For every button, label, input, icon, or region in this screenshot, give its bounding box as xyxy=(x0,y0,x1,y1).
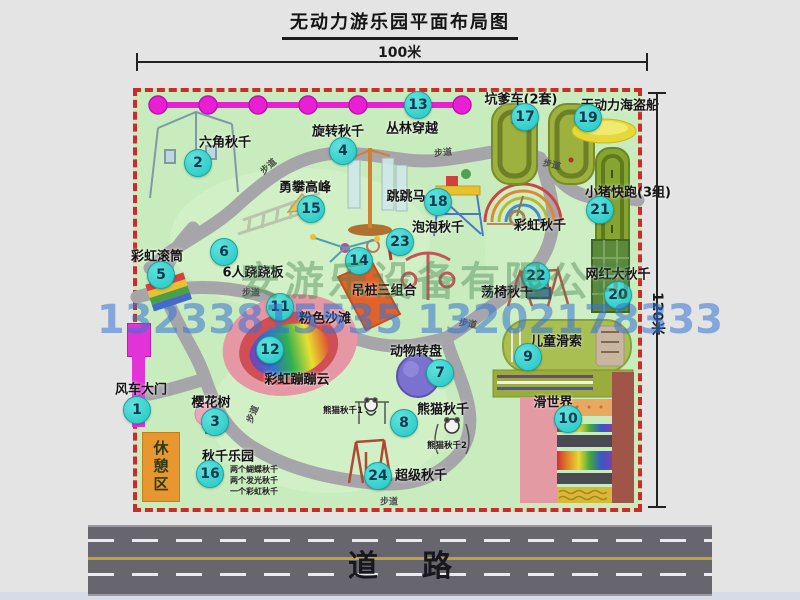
page-title: 无动力游乐园平面布局图 xyxy=(282,8,518,40)
footpath-label: 步道 xyxy=(380,495,398,508)
label-jumping-horse: 跳跳马 xyxy=(386,186,425,205)
label-jungle-crossing: 丛林穿越 xyxy=(386,118,438,137)
slide-world-icon xyxy=(493,370,634,503)
label-panda-swing: 熊猫秋千 xyxy=(417,399,469,418)
label-panda-swing-2: 熊猫秋千2 xyxy=(427,439,467,451)
right-dimension-tick-bottom xyxy=(648,506,666,508)
label-super-swing: 超级秋千 xyxy=(395,465,447,484)
badge-kids-zipline: 9 xyxy=(514,343,542,371)
top-dimension-tick-left xyxy=(136,53,138,71)
badge-jungle-crossing: 13 xyxy=(404,91,432,119)
badge-kengdie-car: 17 xyxy=(511,103,539,131)
badge-rainbow-roller: 5 xyxy=(147,261,175,289)
watermark-phone: 13233815535 13202178333 xyxy=(97,297,723,343)
badge-jumping-horse: 18 xyxy=(424,188,452,216)
badge-pirate-ship: 19 xyxy=(574,104,602,132)
swing-park-note-2: 两个发光秋千 xyxy=(230,475,278,486)
badge-super-swing: 24 xyxy=(364,462,392,490)
swing-park-note-3: 一个彩虹秋千 xyxy=(230,486,278,497)
badge-peak-climbing: 15 xyxy=(297,195,325,223)
badge-panda-swing: 8 xyxy=(390,409,418,437)
label-rainbow-swing: 彩虹秋千 xyxy=(514,215,566,234)
badge-cherry-tree: 3 xyxy=(201,408,229,436)
badge-hexagon-swing: 2 xyxy=(184,149,212,177)
label-windmill-gate: 风车大门 xyxy=(115,379,167,398)
label-animal-carousel: 动物转盘 xyxy=(390,341,442,360)
label-bubble-swing: 泡泡秋千 xyxy=(412,217,464,236)
label-rainbow-cloud: 彩虹蹦蹦云 xyxy=(264,369,329,388)
width-dimension-label: 100米 xyxy=(378,42,421,62)
label-panda-swing-1: 熊猫秋千1 xyxy=(323,404,363,416)
right-dimension-tick-top xyxy=(648,92,666,94)
park-plan-page: { "title": "无动力游乐园平面布局图", "dims": { "wid… xyxy=(0,0,800,600)
rest-area: 休憩区 xyxy=(142,432,180,502)
badge-animal-carousel: 7 xyxy=(426,359,454,387)
rest-area-label: 休憩区 xyxy=(151,440,172,494)
label-peak-climbing: 勇攀高峰 xyxy=(279,177,331,196)
footpath-label: 步道 xyxy=(433,145,452,160)
badge-slide-world: 10 xyxy=(554,405,582,433)
label-hexagon-swing: 六角秋千 xyxy=(199,132,251,151)
badge-rotating-swing: 4 xyxy=(329,137,357,165)
badge-six-person-seesaw: 6 xyxy=(210,238,238,266)
top-dimension-tick-right xyxy=(646,53,648,71)
badge-windmill-gate: 1 xyxy=(123,396,151,424)
badge-piggy-run: 21 xyxy=(586,196,614,224)
swing-park-notes: 两个蝴蝶秋千 两个发光秋千 一个彩虹秋千 xyxy=(230,464,278,497)
swing-park-note-1: 两个蝴蝶秋千 xyxy=(230,464,278,475)
badge-swing-park: 16 xyxy=(196,460,224,488)
